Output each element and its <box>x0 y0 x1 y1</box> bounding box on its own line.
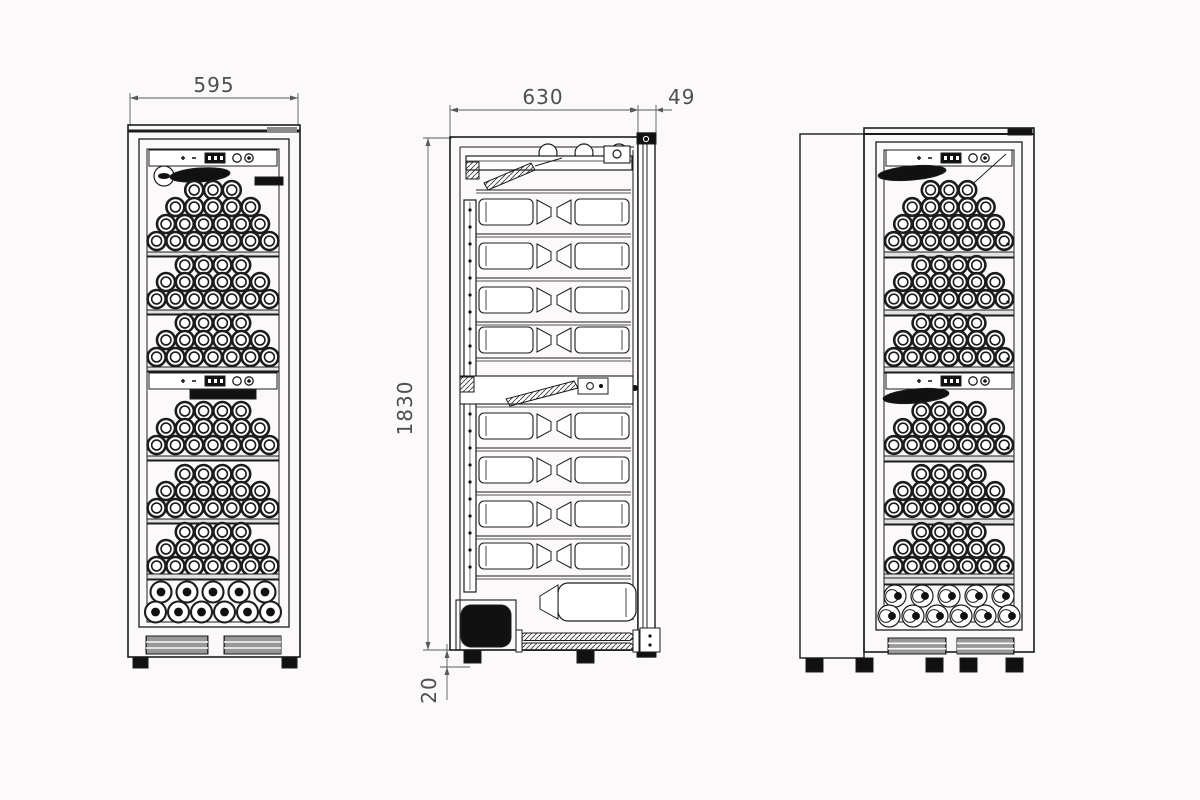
dimension-unit-height: 1830 <box>393 138 463 650</box>
persp-bottle-section <box>884 181 1014 258</box>
persp-bottle-section <box>884 402 1014 462</box>
persp-bottle-section <box>884 314 1014 373</box>
side-lower-zone <box>476 404 631 579</box>
front-lower-control-panel <box>149 373 277 389</box>
side-top-frame <box>466 144 632 190</box>
front-lower-panel-bar <box>190 390 256 399</box>
side-machine-compartment <box>456 583 639 652</box>
dimension-side-depth: 630 <box>450 85 638 138</box>
persp-bottom-shelf <box>884 578 1014 585</box>
foot-height-label: 20 <box>417 676 441 703</box>
persp-bottom-bottle-rows <box>878 585 1020 627</box>
side-feet <box>464 650 594 663</box>
dimension-front-width: 595 <box>130 73 298 126</box>
front-bottle-section <box>147 181 279 257</box>
side-mid-divider <box>460 376 633 406</box>
front-bottom-shelf <box>147 574 279 580</box>
side-upper-zone <box>476 190 631 361</box>
front-view <box>128 125 300 668</box>
persp-bottle-section <box>884 256 1014 316</box>
unit-height-label: 1830 <box>393 381 417 436</box>
front-bottle-section <box>147 314 279 372</box>
front-vent-grilles <box>146 636 281 654</box>
side-depth-label: 630 <box>522 85 563 109</box>
front-bottle-section <box>147 402 279 461</box>
perspective-view <box>800 128 1034 672</box>
dimension-foot-height: 20 <box>417 644 470 704</box>
persp-bottle-section <box>884 465 1014 525</box>
side-door-section <box>632 133 660 657</box>
front-bottle-section <box>147 256 279 315</box>
front-bottle-section <box>148 523 279 575</box>
front-upper-control-panel <box>149 150 277 166</box>
technical-drawing-canvas: 595 630 49 1830 20 <box>0 0 1200 800</box>
persp-feet <box>806 658 1023 672</box>
side-view <box>450 133 660 663</box>
front-feet <box>133 657 297 668</box>
front-bottom-bottle-rows <box>145 582 281 623</box>
wine-cabinet-technical-drawing: 595 630 49 1830 20 <box>0 0 1200 800</box>
persp-bottle-section <box>884 523 1014 580</box>
persp-upper-control-panel <box>886 150 1012 166</box>
persp-lower-control-panel <box>886 373 1012 389</box>
front-bottle-section <box>147 465 279 524</box>
front-width-label: 595 <box>193 73 234 97</box>
door-thickness-label: 49 <box>668 85 695 109</box>
